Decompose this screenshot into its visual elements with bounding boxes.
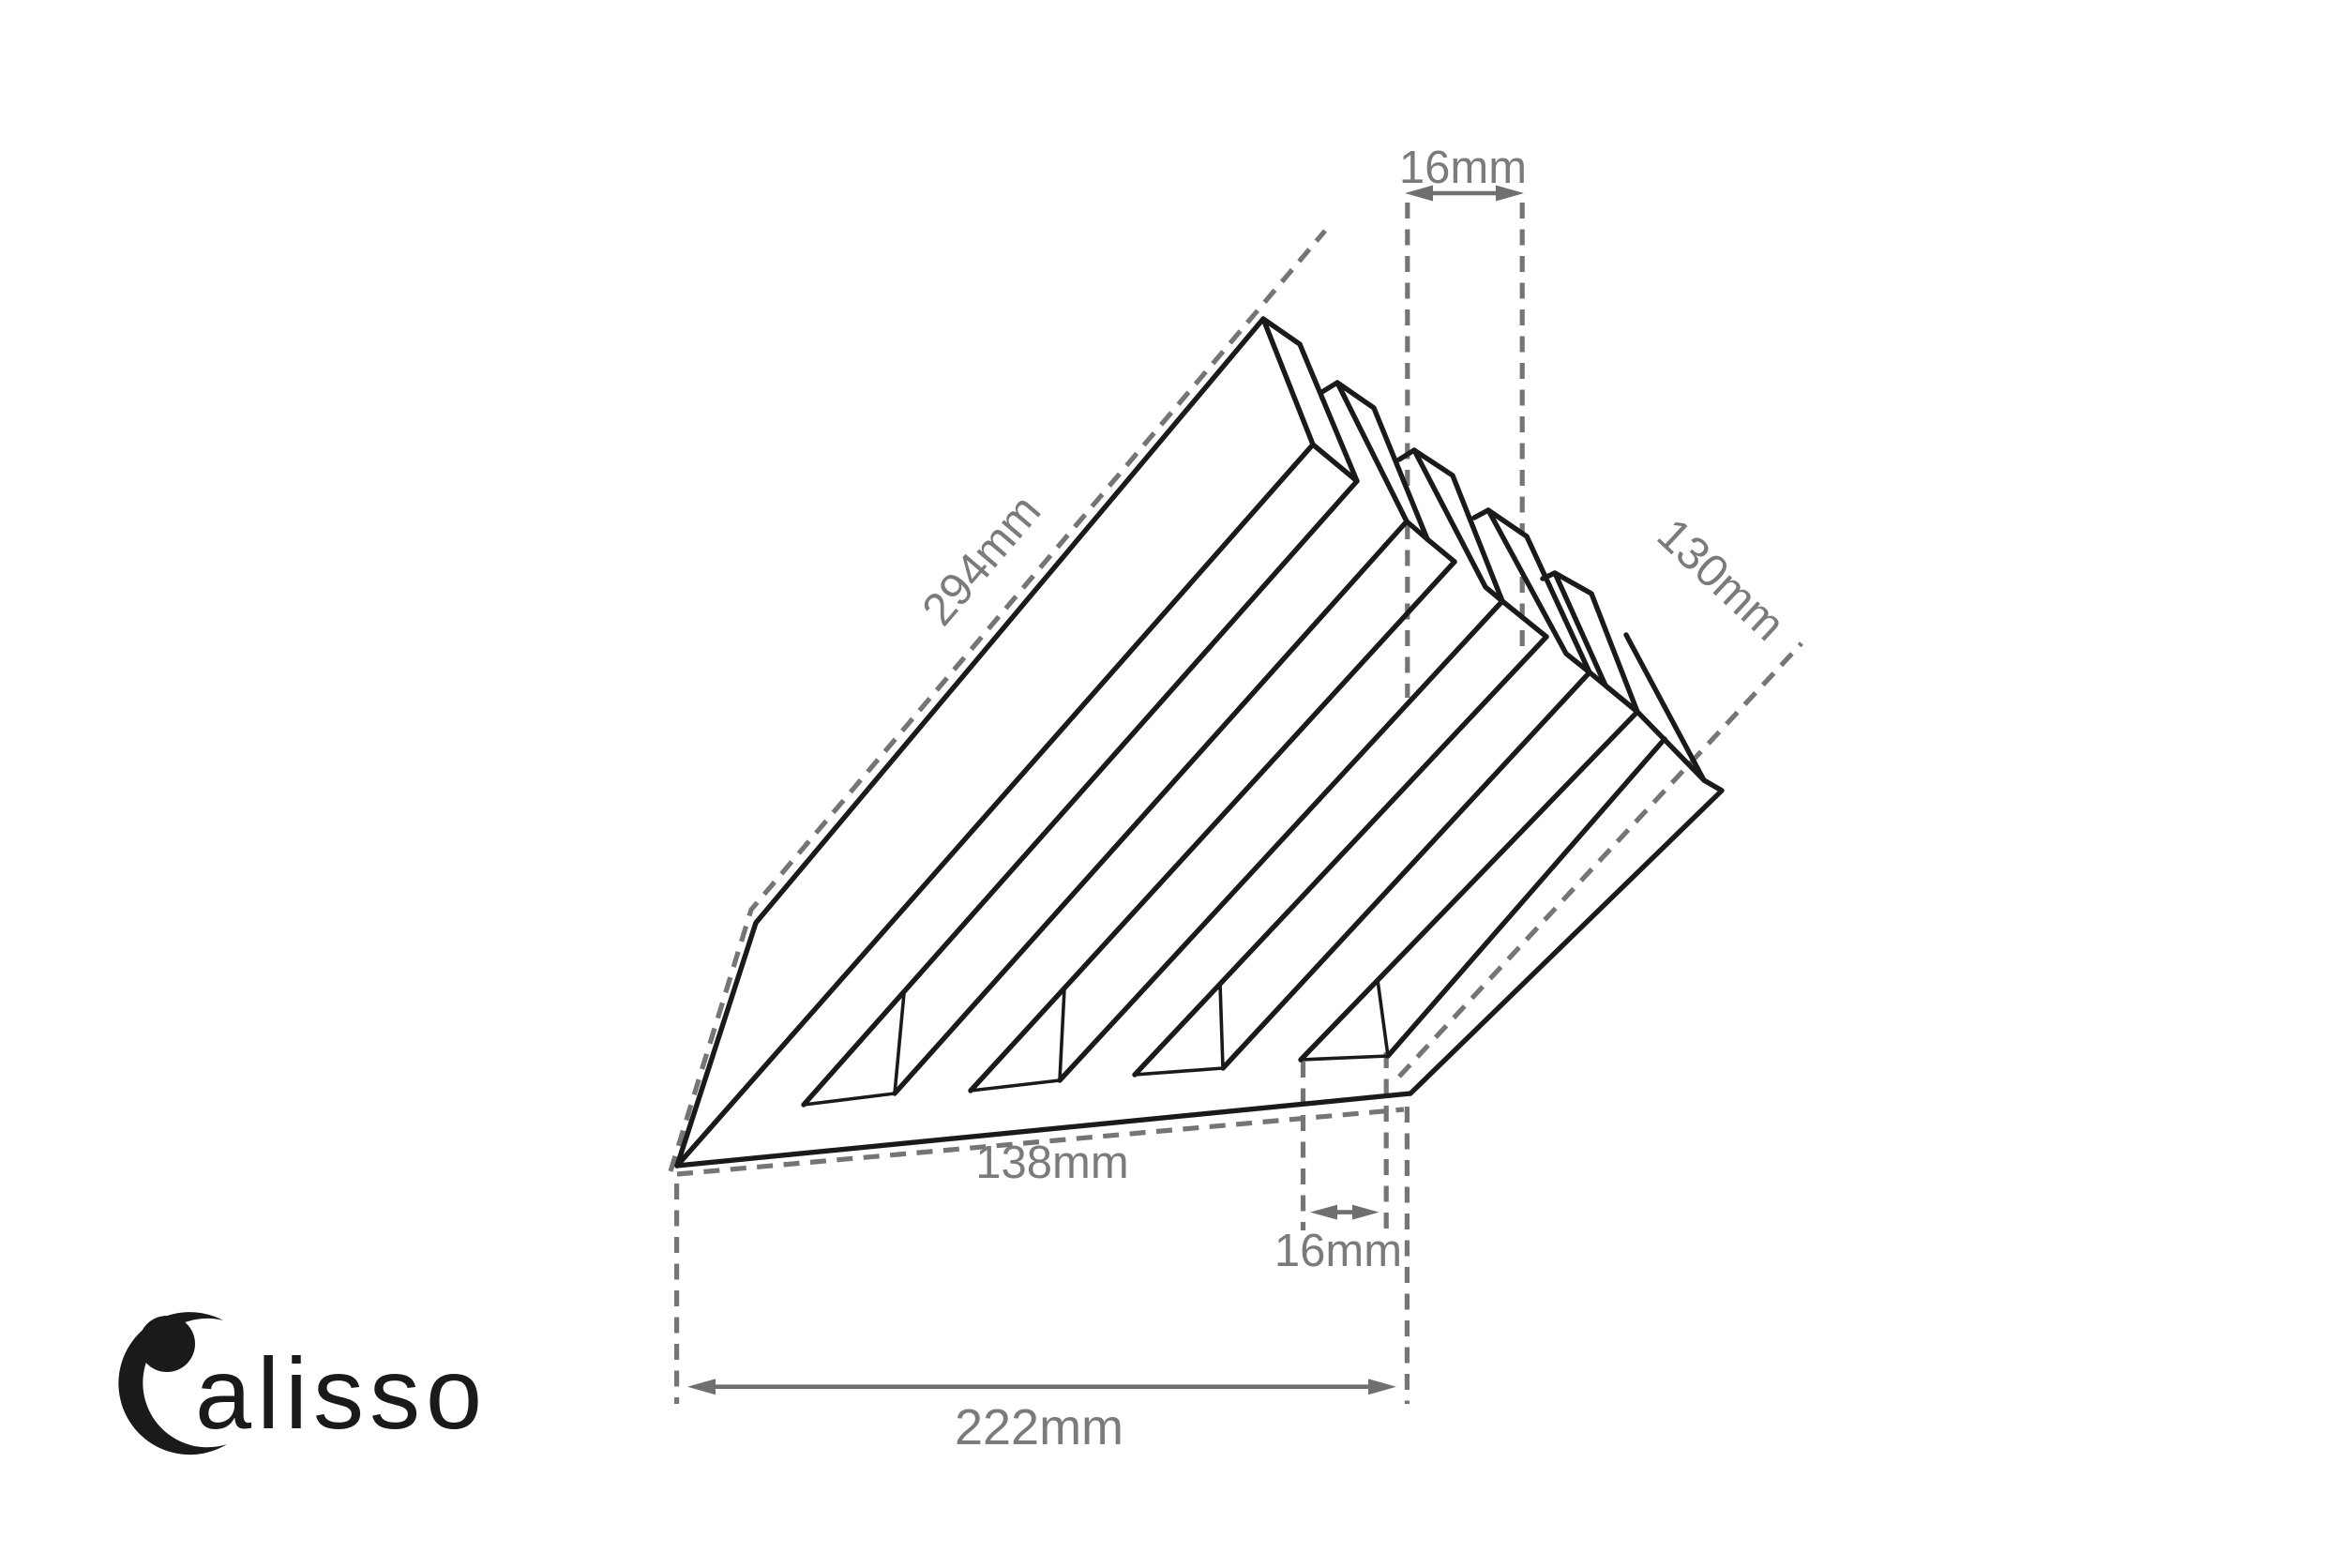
svg-text:16mm: 16mm: [1274, 1226, 1402, 1276]
svg-text:138mm: 138mm: [975, 1138, 1128, 1188]
svg-text:222mm: 222mm: [955, 1399, 1123, 1455]
svg-text:16mm: 16mm: [1399, 143, 1527, 193]
svg-text:alisso: alisso: [195, 1336, 488, 1450]
